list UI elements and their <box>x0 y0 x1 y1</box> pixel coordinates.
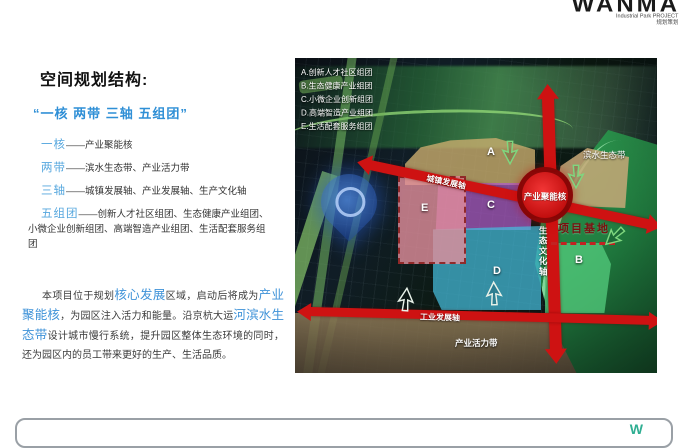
project-site-label: 项目基地 <box>558 220 610 236</box>
legend-item-d: D.高端智造产业组团 <box>301 107 373 121</box>
zone-label-b: B <box>575 254 583 266</box>
sketch-arrow-icon <box>485 280 504 307</box>
item-text: ——城镇发展轴、产业发展轴、生产文化轴 <box>66 186 247 197</box>
list-item-belts: 两带——滨水生态带、产业活力带 <box>28 161 270 176</box>
zone-label-e: E <box>421 202 428 214</box>
list-item-clusters: 五组团——创新人才社区组团、生态健康产业组团、小微企业创新组团、高端智造产业组团… <box>28 207 270 252</box>
zone-label-c: C <box>487 199 495 211</box>
legend-item-a: A.创新人才社区组团 <box>301 66 373 80</box>
vitality-belt-label: 产业活力带 <box>455 336 498 349</box>
item-text: ——滨水生态带、产业活力带 <box>66 163 190 174</box>
section-title: 空间规划结构: <box>40 66 148 90</box>
sketch-arrow-icon <box>567 164 585 190</box>
logo-tagline-cn: 规划策划 <box>616 20 678 27</box>
arrowhead-down-icon <box>545 349 567 365</box>
item-label: 两带 <box>41 162 66 174</box>
arrowhead-left-icon <box>297 303 311 321</box>
paragraph-text: 区域，启动后将成为 <box>166 291 259 302</box>
item-label: 五组团 <box>41 208 79 220</box>
zone-label-d: D <box>493 265 501 277</box>
axis-industry-label: 工业发展轴 <box>420 310 460 323</box>
footer-frame: W <box>15 418 673 448</box>
footer-watermark: W <box>630 421 643 437</box>
legend-item-c: C.小微企业创新组团 <box>301 93 373 107</box>
list-item-core: 一核——产业聚能核 <box>28 138 270 153</box>
zone-label-a: A <box>487 146 495 158</box>
list-item-axes: 三轴——城镇发展轴、产业发展轴、生产文化轴 <box>28 184 270 199</box>
sketch-arrow-icon <box>501 140 519 166</box>
logo-tagline: Industrial Park PROJECT 规划策划 <box>616 13 678 26</box>
legend-item-e: E.生活配套服务组团 <box>301 120 373 134</box>
map-legend: A.创新人才社区组团 B.生态健康产业组团 C.小微企业创新组团 D.高端智造产… <box>301 66 373 134</box>
paragraph-text: ，为园区注入活力和能量。沿京杭大运 <box>60 311 233 322</box>
industry-core-circle: 产业聚能核 <box>517 167 573 223</box>
paragraph-text: 设计城市慢行系统，提升园区整体生态环境的同时，还为园区内的员工带来更好的生产、生… <box>22 331 284 361</box>
arrowhead-right-icon <box>649 312 657 330</box>
arrowhead-up-icon <box>537 84 559 100</box>
item-label: 一核 <box>41 139 66 151</box>
structure-list: 一核——产业聚能核 两带——滨水生态带、产业活力带 三轴——城镇发展轴、产业发展… <box>28 138 270 260</box>
section-subtitle: “一核 两带 三轴 五组团” <box>33 103 188 122</box>
item-label: 三轴 <box>41 185 66 197</box>
highlight-core-development: 核心发展 <box>114 288 165 302</box>
legend-item-b: B.生态健康产业组团 <box>301 80 373 94</box>
paragraph-text: 本项目位于规划 <box>42 291 114 302</box>
item-text: ——产业聚能核 <box>66 140 133 151</box>
core-label: 产业聚能核 <box>524 189 567 202</box>
planning-map: 城镇发展轴 工业发展轴 生态文化轴 产业聚能核 项目基地 A B C D E 滨… <box>295 58 657 373</box>
waterfront-belt-label: 滨水生态带 <box>583 148 626 161</box>
sketch-arrow-icon <box>396 285 416 312</box>
description-paragraph: 本项目位于规划核心发展区域，启动后将成为产业聚能核，为园区注入活力和能量。沿京杭… <box>22 286 284 365</box>
slide: { "header": { "logo": "WANMA", "tagline_… <box>0 0 690 426</box>
axis-eco-label: 生态文化轴 <box>535 226 548 277</box>
